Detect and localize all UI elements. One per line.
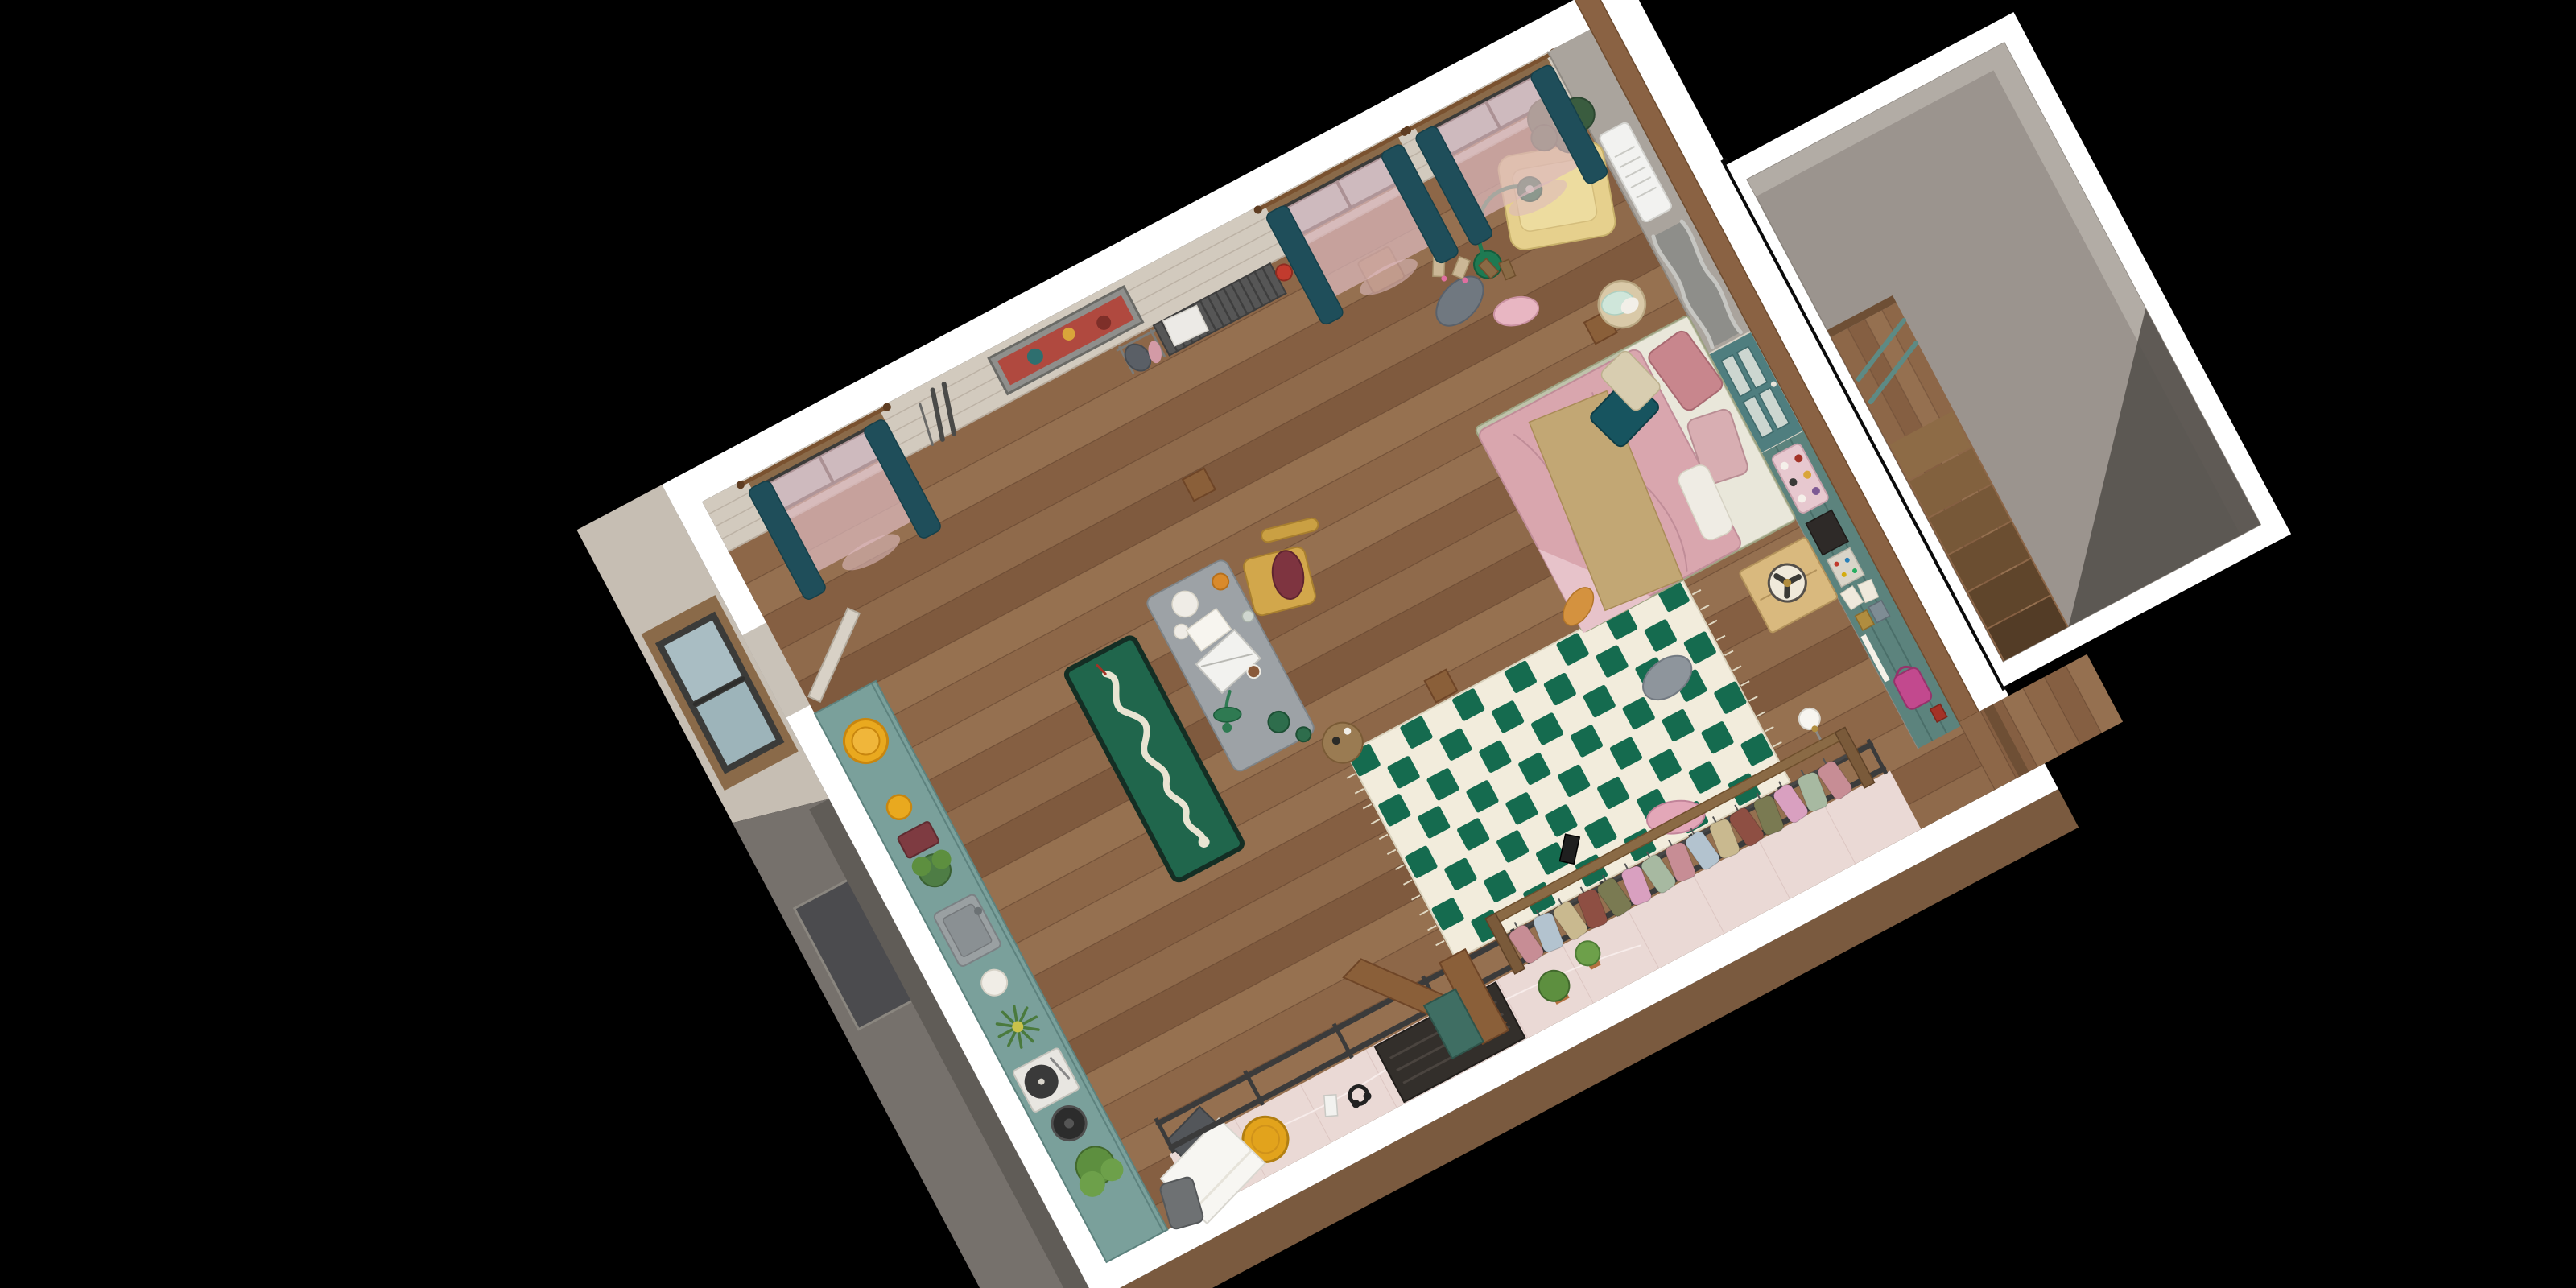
render-viewport[interactable]: [0, 0, 2576, 1288]
phone-on-floor: [1324, 1095, 1338, 1117]
floorplan-3d-view[interactable]: [0, 0, 2576, 1288]
